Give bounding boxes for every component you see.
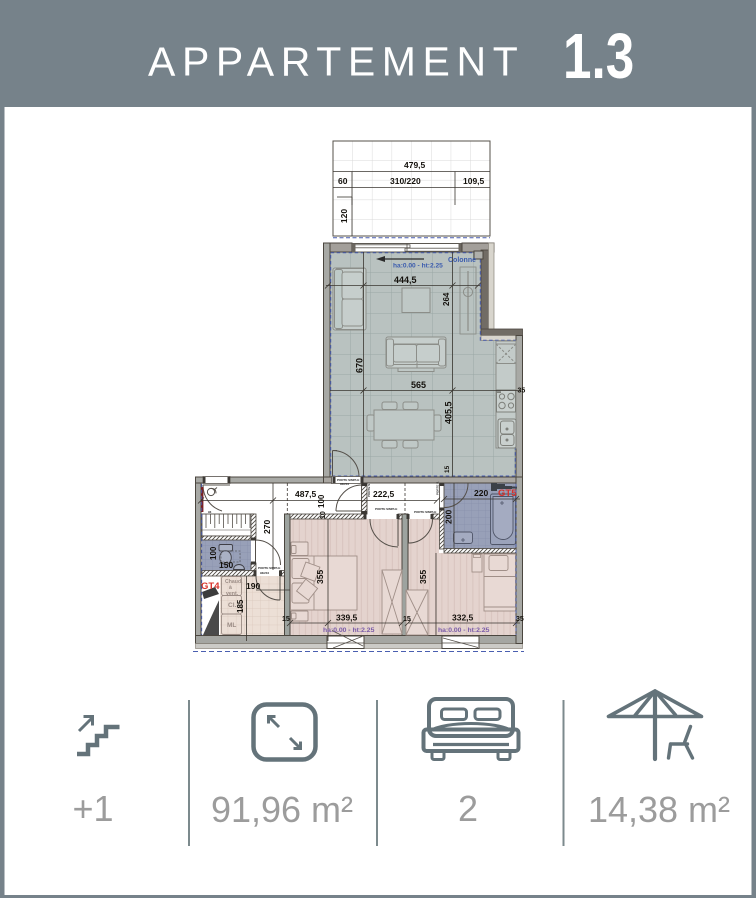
- svg-text:10: 10: [320, 511, 327, 519]
- svg-text:PORTE SIMPLE: PORTE SIMPLE: [375, 507, 397, 511]
- svg-text:14,38 m²: 14,38 m²: [588, 789, 730, 830]
- svg-text:2: 2: [458, 788, 478, 829]
- svg-text:15: 15: [282, 616, 290, 623]
- svg-text:310/220: 310/220: [390, 176, 421, 186]
- svg-text:405,5: 405,5: [444, 401, 454, 424]
- svg-text:93: 93: [208, 510, 212, 514]
- svg-text:339,5: 339,5: [336, 613, 358, 623]
- svg-text:355: 355: [418, 570, 428, 584]
- svg-text:565: 565: [411, 380, 426, 390]
- svg-text:vent.: vent.: [226, 591, 239, 597]
- svg-text:109,5: 109,5: [463, 176, 485, 186]
- svg-text:91,96 m²: 91,96 m²: [211, 789, 353, 830]
- svg-text:100: 100: [317, 494, 326, 508]
- svg-text:35: 35: [518, 388, 526, 395]
- svg-text:270: 270: [262, 520, 272, 534]
- svg-text:264: 264: [442, 292, 451, 306]
- svg-text:487,5: 487,5: [295, 489, 317, 499]
- svg-text:PORTE SIMPLE: PORTE SIMPLE: [414, 510, 436, 514]
- svg-text:35: 35: [516, 616, 524, 623]
- svg-text:Chaud.: Chaud.: [225, 579, 243, 585]
- svg-text:PORTE S.: PORTE S.: [436, 481, 440, 495]
- svg-text:670: 670: [355, 358, 365, 373]
- svg-text:190: 190: [246, 581, 260, 591]
- svg-text:GT5: GT5: [498, 488, 517, 499]
- svg-text:+1: +1: [72, 788, 113, 829]
- svg-text:APPARTEMENT: APPARTEMENT: [148, 39, 524, 85]
- svg-text:60: 60: [338, 176, 348, 186]
- svg-text:15: 15: [444, 465, 451, 473]
- svg-text:ML: ML: [227, 622, 236, 629]
- svg-text:ha:0.00 - ht:2.25: ha:0.00 - ht:2.25: [393, 263, 443, 270]
- svg-text:ha:0.00 - ht:2.25: ha:0.00 - ht:2.25: [438, 627, 490, 634]
- svg-text:444,5: 444,5: [394, 275, 417, 285]
- svg-text:93/210: 93/210: [260, 571, 270, 575]
- svg-text:220: 220: [474, 488, 488, 498]
- svg-text:355: 355: [315, 570, 325, 584]
- svg-text:100: 100: [209, 546, 218, 560]
- svg-text:93/210: 93/210: [340, 482, 350, 486]
- svg-text:GT4: GT4: [201, 581, 220, 592]
- svg-text:120: 120: [339, 209, 349, 223]
- svg-text:15: 15: [403, 616, 411, 623]
- svg-text:479,5: 479,5: [404, 160, 426, 170]
- svg-text:222,5: 222,5: [373, 489, 395, 499]
- svg-text:1.3: 1.3: [563, 22, 634, 93]
- svg-text:PORTE SIMPLE: PORTE SIMPLE: [258, 566, 280, 570]
- svg-text:332,5: 332,5: [452, 613, 474, 623]
- svg-text:185: 185: [236, 599, 245, 613]
- svg-text:150: 150: [219, 560, 233, 570]
- svg-text:200: 200: [444, 510, 454, 524]
- svg-text:PORTE S.: PORTE S.: [367, 483, 371, 497]
- svg-text:ha:0.00 - ht:2.25: ha:0.00 - ht:2.25: [323, 627, 375, 634]
